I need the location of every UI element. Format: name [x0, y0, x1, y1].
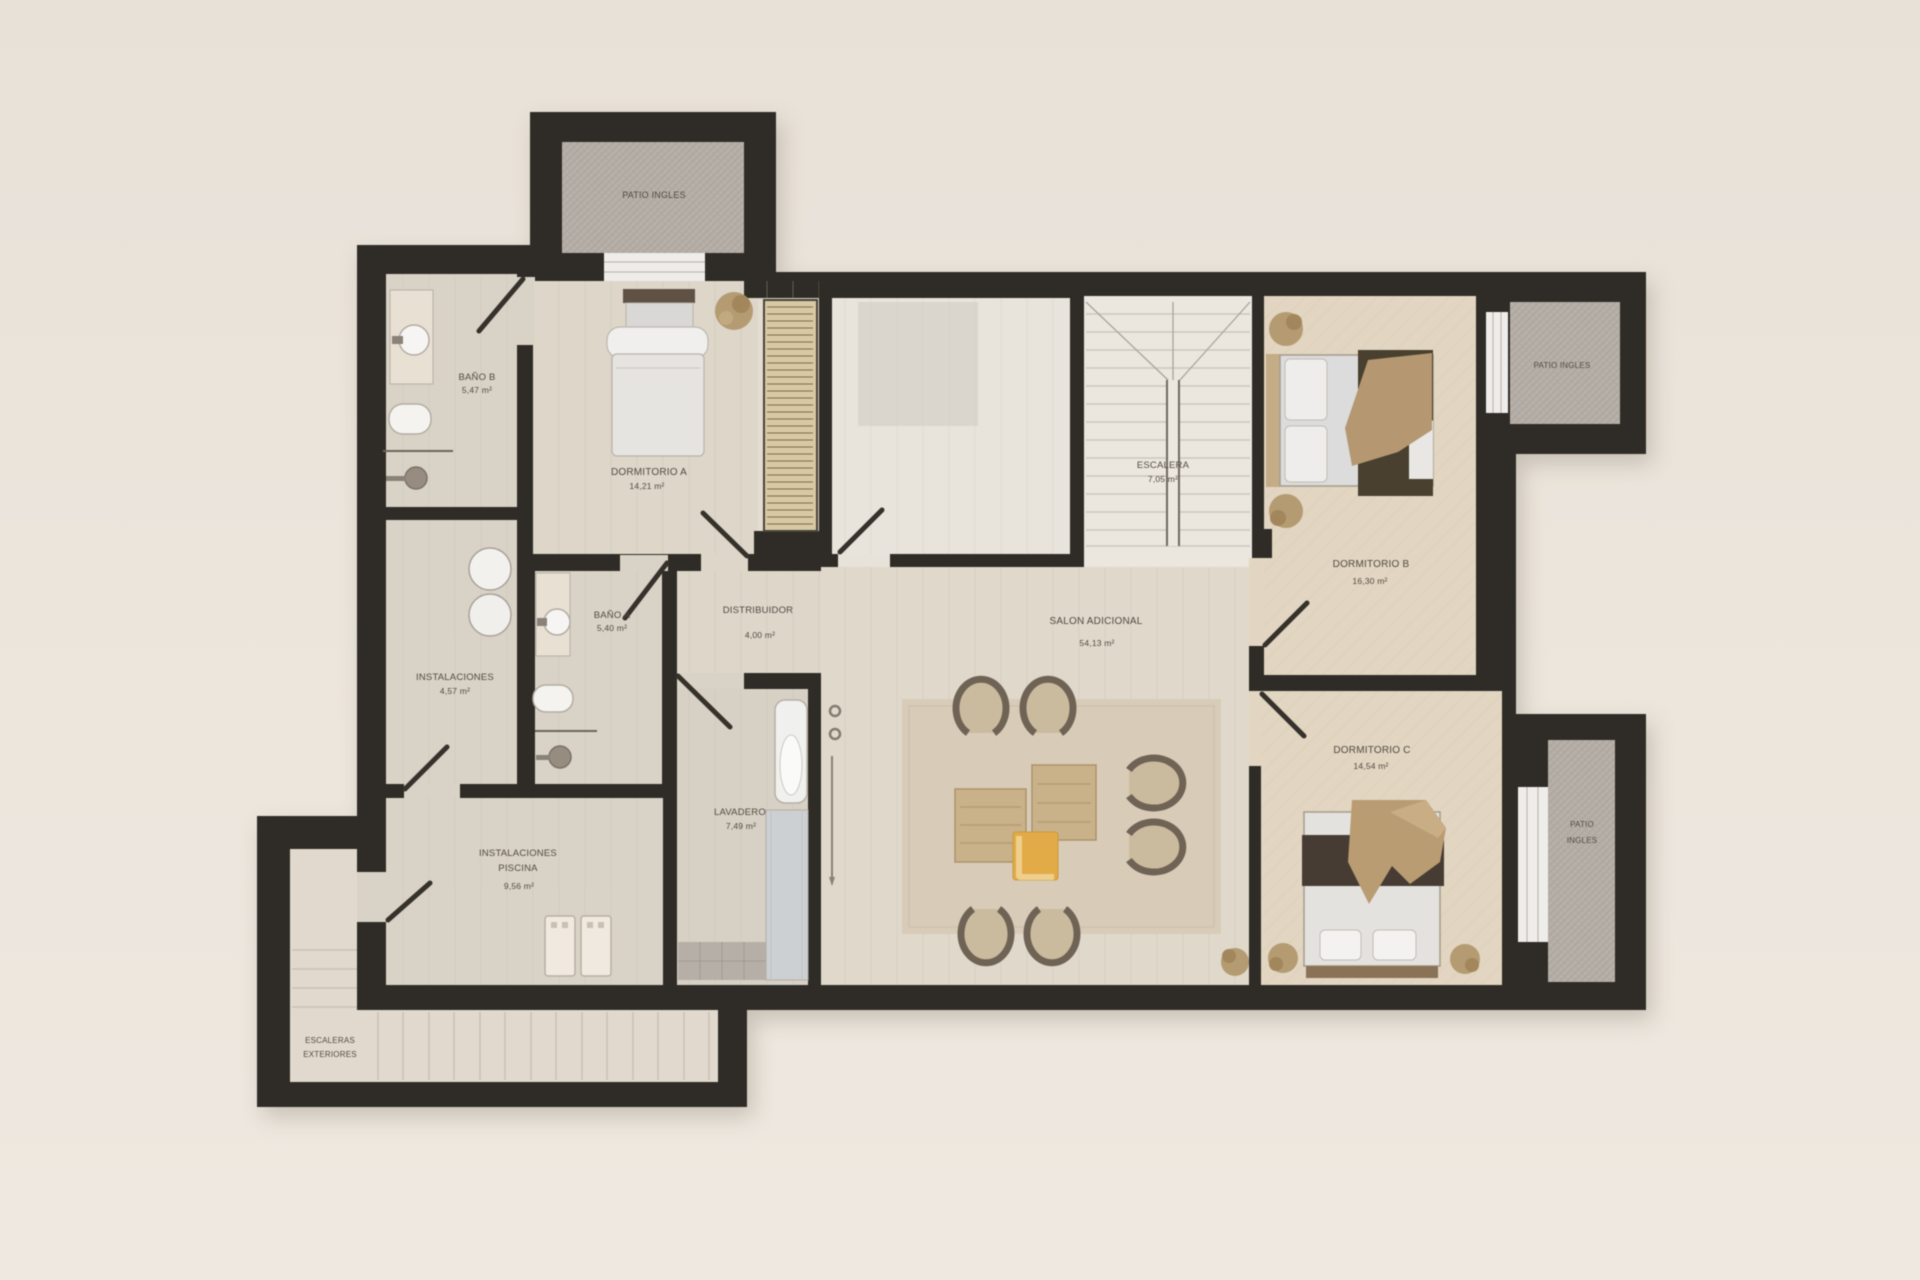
svg-text:ESCALERA: ESCALERA [1137, 460, 1190, 471]
svg-text:INGLES: INGLES [1567, 836, 1598, 845]
svg-text:ESCALERAS: ESCALERAS [305, 1036, 355, 1045]
svg-text:EXTERIORES: EXTERIORES [303, 1050, 357, 1059]
svg-text:INSTALACIONES: INSTALACIONES [479, 848, 557, 859]
svg-text:BAÑO B: BAÑO B [458, 372, 495, 383]
svg-text:7,05 m²: 7,05 m² [1148, 474, 1178, 484]
svg-text:LAVADERO: LAVADERO [714, 807, 766, 818]
svg-text:DORMITORIO B: DORMITORIO B [1333, 559, 1410, 570]
svg-text:BAÑO A: BAÑO A [594, 610, 631, 621]
svg-text:54,13 m²: 54,13 m² [1079, 638, 1114, 648]
svg-text:PISCINA: PISCINA [498, 863, 538, 874]
svg-text:9,56 m²: 9,56 m² [504, 881, 534, 891]
svg-text:16,30 m²: 16,30 m² [1352, 576, 1387, 586]
svg-text:14,21 m²: 14,21 m² [629, 481, 664, 491]
svg-text:DORMITORIO A: DORMITORIO A [611, 467, 687, 478]
svg-text:DISTRIBUIDOR: DISTRIBUIDOR [723, 605, 794, 616]
svg-text:4,00 m²: 4,00 m² [745, 630, 775, 640]
svg-text:PATIO: PATIO [1570, 820, 1594, 829]
svg-text:4,57 m²: 4,57 m² [440, 686, 470, 696]
svg-text:PATIO INGLES: PATIO INGLES [1534, 361, 1591, 370]
svg-text:INSTALACIONES: INSTALACIONES [416, 672, 494, 683]
svg-text:PATIO INGLES: PATIO INGLES [622, 190, 686, 200]
svg-text:SALON ADICIONAL: SALON ADICIONAL [1049, 616, 1142, 627]
svg-text:DORMITORIO C: DORMITORIO C [1333, 745, 1410, 756]
svg-text:5,40 m²: 5,40 m² [597, 623, 627, 633]
svg-text:5,47 m²: 5,47 m² [462, 385, 492, 395]
svg-text:7,49 m²: 7,49 m² [726, 821, 756, 831]
svg-text:14,54 m²: 14,54 m² [1353, 761, 1388, 771]
